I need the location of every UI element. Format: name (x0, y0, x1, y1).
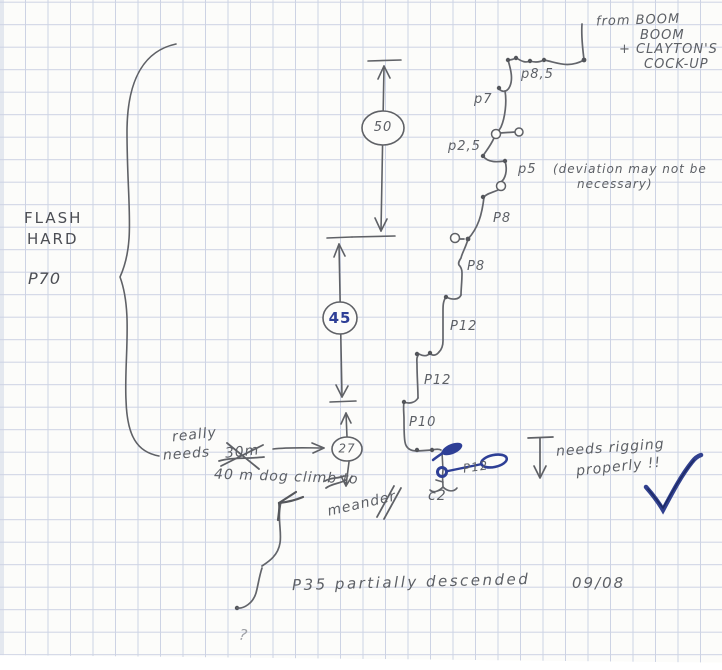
sketch-strokes-canvas (0, 0, 722, 670)
depth-value-27: 27 (338, 442, 355, 455)
date-note: 09/08 (572, 575, 625, 592)
pitch-label-p12-lower: P12 (424, 374, 451, 388)
pitch-label-p10: P10 (409, 416, 436, 430)
pitch-label-p8-5: p8,5 (521, 68, 554, 82)
depth-arrow-50 (352, 60, 404, 237)
depth-value-50: 50 (374, 121, 393, 135)
bolt-dots (235, 56, 587, 610)
pitch-label-p5: p5 (518, 163, 537, 177)
c2-label: c2 (428, 489, 447, 504)
source-note-line4: COCK-UP (644, 58, 709, 72)
flash-label-line1: FLASH (24, 210, 82, 227)
pitch-label-p8-upper: P8 (493, 212, 511, 226)
depth-value-45: 45 (329, 310, 352, 327)
really-needs-note-line2: needs (163, 445, 211, 464)
pitch-label-p2-5: p2,5 (448, 140, 481, 154)
rigging-down-arrow (528, 437, 553, 478)
bird-mark (278, 492, 303, 520)
pitch-label-p12-upper: P12 (450, 320, 477, 334)
p5-deviation-note-line1: (deviation may not be (553, 163, 707, 176)
pitch-label-p7: p7 (474, 93, 493, 107)
flash-label-line2: HARD (27, 231, 79, 248)
p5-deviation-note-line2: necessary) (577, 178, 653, 191)
p70-label: P70 (28, 270, 61, 288)
left-brace (120, 44, 176, 456)
depth-arrow-45 (323, 237, 357, 437)
source-note-line3: + CLAYTON'S (619, 43, 718, 57)
sketch-page: from BOOM BOOM + CLAYTON'S COCK-UP FLASH… (0, 0, 722, 670)
pitch-label-p8-lower: P8 (467, 260, 485, 274)
meander-line (237, 502, 281, 608)
